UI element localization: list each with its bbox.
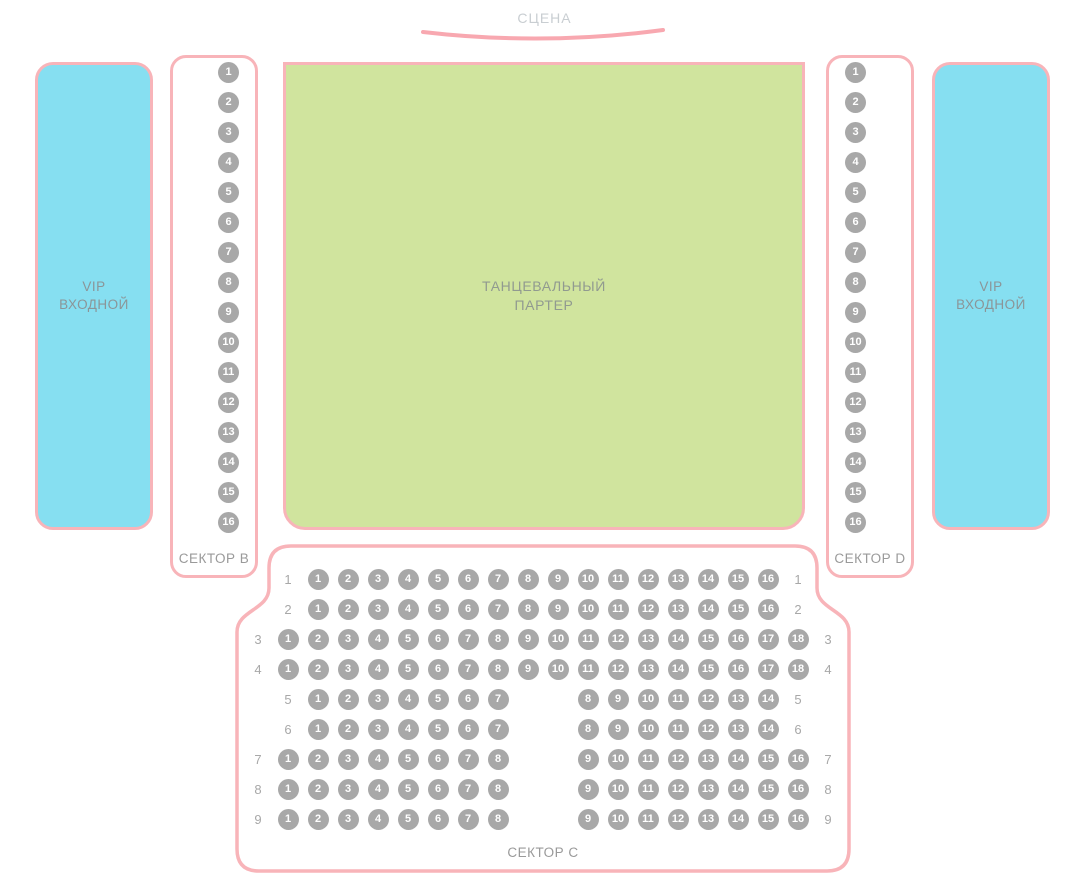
row-label-left: 7 [243, 749, 273, 770]
seat-6[interactable]: 6 [458, 689, 479, 710]
seat-8[interactable]: 8 [578, 719, 599, 740]
seat-11[interactable]: 11 [638, 749, 659, 770]
seat-slot: 5 [393, 809, 423, 830]
seat-9[interactable]: 9 [518, 659, 539, 680]
seat-slot: 5 [423, 599, 453, 620]
seat-slot: 13 [723, 689, 753, 710]
seat-14[interactable]: 14 [758, 719, 779, 740]
seat-11[interactable]: 11 [608, 569, 629, 590]
seat-slot: 9 [543, 599, 573, 620]
seat-10[interactable]: 10 [578, 569, 599, 590]
seat-2[interactable]: 2 [338, 569, 359, 590]
seat-10[interactable]: 10 [608, 779, 629, 800]
seat-slot: 12 [603, 629, 633, 650]
seat-slot: 6 [423, 809, 453, 830]
seat-12[interactable]: 12 [698, 689, 719, 710]
seat-14[interactable]: 14 [668, 629, 689, 650]
seat-10[interactable]: 10 [218, 332, 239, 353]
seat-11[interactable]: 11 [218, 362, 239, 383]
vip-left-label: VIP ВХОДНОЙ [59, 278, 129, 314]
seat-7[interactable]: 7 [488, 569, 509, 590]
seat-slot: 5 [393, 629, 423, 650]
sector-b-box: 12345678910111213141516 СЕКТОР B [170, 55, 258, 578]
seat-3[interactable]: 3 [338, 749, 359, 770]
seat-4[interactable]: 4 [398, 689, 419, 710]
seat-1[interactable]: 1 [308, 569, 329, 590]
seat-9[interactable]: 9 [518, 629, 539, 650]
seat-slot: 9 [513, 629, 543, 650]
seat-10[interactable]: 10 [638, 689, 659, 710]
seat-slot: 5 [393, 659, 423, 680]
seat-7[interactable]: 7 [458, 629, 479, 650]
seat-3[interactable]: 3 [368, 689, 389, 710]
seating-map: СЦЕНА VIP ВХОДНОЙ 1234567891011121314151… [0, 0, 1089, 885]
seat-2[interactable]: 2 [308, 629, 329, 650]
seat-1[interactable]: 1 [278, 629, 299, 650]
row-label-right: 8 [813, 779, 843, 800]
seat-13[interactable]: 13 [668, 569, 689, 590]
seat-12[interactable]: 12 [638, 599, 659, 620]
seat-15[interactable]: 15 [758, 779, 779, 800]
seat-slot: 2 [333, 599, 363, 620]
seat-13[interactable]: 13 [638, 659, 659, 680]
seat-1[interactable]: 1 [845, 62, 866, 83]
seat-9[interactable]: 9 [845, 302, 866, 323]
seat-slot: 1 [273, 659, 303, 680]
seat-7[interactable]: 7 [218, 242, 239, 263]
seat-13[interactable]: 13 [698, 749, 719, 770]
seat-12[interactable]: 12 [608, 659, 629, 680]
seat-slot: 1 [273, 749, 303, 770]
seat-10[interactable]: 10 [578, 599, 599, 620]
seat-slot: 2 [303, 809, 333, 830]
seat-slot: 15 [693, 629, 723, 650]
seat-slot: 10 [603, 779, 633, 800]
seat-18[interactable]: 18 [788, 629, 809, 650]
seat-11[interactable]: 11 [638, 809, 659, 830]
vip-zone-left[interactable]: VIP ВХОДНОЙ [35, 62, 153, 530]
seat-13[interactable]: 13 [638, 629, 659, 650]
seat-5[interactable]: 5 [398, 629, 419, 650]
seat-slot: 12 [633, 599, 663, 620]
seat-slot: 13 [693, 809, 723, 830]
seat-5[interactable]: 5 [218, 182, 239, 203]
seat-5[interactable]: 5 [398, 749, 419, 770]
seat-slot: 7 [483, 599, 513, 620]
seat-16[interactable]: 16 [788, 809, 809, 830]
seat-14[interactable]: 14 [728, 749, 749, 770]
seat-2[interactable]: 2 [338, 599, 359, 620]
seat-1[interactable]: 1 [308, 599, 329, 620]
seat-15[interactable]: 15 [698, 659, 719, 680]
seat-slot: 10 [543, 629, 573, 650]
seat-12[interactable]: 12 [668, 779, 689, 800]
seat-8[interactable]: 8 [488, 809, 509, 830]
seat-slot: 4 [363, 749, 393, 770]
seat-slot: 13 [663, 599, 693, 620]
seat-15[interactable]: 15 [218, 482, 239, 503]
seat-7[interactable]: 7 [488, 689, 509, 710]
seat-8[interactable]: 8 [845, 272, 866, 293]
seat-1[interactable]: 1 [308, 719, 329, 740]
seat-13[interactable]: 13 [698, 779, 719, 800]
seat-5[interactable]: 5 [428, 719, 449, 740]
seat-6[interactable]: 6 [458, 599, 479, 620]
seat-11[interactable]: 11 [608, 599, 629, 620]
seat-3[interactable]: 3 [845, 122, 866, 143]
seat-slot: 6 [453, 599, 483, 620]
seat-slot: 3 [333, 749, 363, 770]
seat-6[interactable]: 6 [458, 569, 479, 590]
row-label-right: 2 [783, 599, 813, 620]
seat-15[interactable]: 15 [728, 599, 749, 620]
seat-14[interactable]: 14 [728, 779, 749, 800]
seat-14[interactable]: 14 [845, 452, 866, 473]
seat-slot: 8 [483, 659, 513, 680]
seat-5[interactable]: 5 [428, 569, 449, 590]
seat-slot: 2 [303, 749, 333, 770]
seat-slot: 2 [333, 569, 363, 590]
stage-arc [420, 24, 666, 46]
seat-1[interactable]: 1 [278, 779, 299, 800]
seat-16[interactable]: 16 [758, 599, 779, 620]
seat-6[interactable]: 6 [218, 212, 239, 233]
seat-slot: 14 [693, 569, 723, 590]
seat-16[interactable]: 16 [788, 779, 809, 800]
seat-6[interactable]: 6 [428, 629, 449, 650]
seat-3[interactable]: 3 [338, 779, 359, 800]
seat-9[interactable]: 9 [608, 719, 629, 740]
seat-1[interactable]: 1 [278, 659, 299, 680]
seat-3[interactable]: 3 [368, 719, 389, 740]
seat-5[interactable]: 5 [398, 779, 419, 800]
empty-slot [543, 809, 573, 830]
seat-slot: 3 [363, 719, 393, 740]
seat-10[interactable]: 10 [548, 659, 569, 680]
seat-4[interactable]: 4 [218, 152, 239, 173]
seat-13[interactable]: 13 [728, 689, 749, 710]
seat-3[interactable]: 3 [338, 659, 359, 680]
seat-14[interactable]: 14 [698, 599, 719, 620]
seat-7[interactable]: 7 [488, 719, 509, 740]
seat-16[interactable]: 16 [728, 629, 749, 650]
seat-slot: 12 [603, 659, 633, 680]
seat-5[interactable]: 5 [845, 182, 866, 203]
seat-6[interactable]: 6 [428, 749, 449, 770]
seat-slot: 7 [453, 749, 483, 770]
row-label-right: 5 [783, 689, 813, 710]
seat-13[interactable]: 13 [728, 719, 749, 740]
seat-8[interactable]: 8 [518, 569, 539, 590]
seat-slot: 18 [783, 629, 813, 650]
seat-4[interactable]: 4 [368, 629, 389, 650]
seat-13[interactable]: 13 [668, 599, 689, 620]
seat-8[interactable]: 8 [218, 272, 239, 293]
seat-10[interactable]: 10 [638, 719, 659, 740]
seat-11[interactable]: 11 [668, 719, 689, 740]
seat-8[interactable]: 8 [488, 629, 509, 650]
seat-slot: 6 [423, 779, 453, 800]
seat-11[interactable]: 11 [845, 362, 866, 383]
seat-2[interactable]: 2 [218, 92, 239, 113]
dance-floor-label: ТАНЦЕВАЛЬНЫЙ ПАРТЕР [482, 277, 606, 315]
seat-slot: 14 [753, 719, 783, 740]
seat-slot: 15 [723, 599, 753, 620]
seat-slot: 10 [543, 659, 573, 680]
seat-16[interactable]: 16 [728, 659, 749, 680]
seat-8[interactable]: 8 [518, 599, 539, 620]
seat-2[interactable]: 2 [338, 719, 359, 740]
seat-9[interactable]: 9 [578, 749, 599, 770]
seat-7[interactable]: 7 [458, 749, 479, 770]
sector-d-box: 12345678910111213141516 СЕКТОР D [826, 55, 914, 578]
seat-14[interactable]: 14 [728, 809, 749, 830]
seat-slot: 13 [633, 659, 663, 680]
seat-slot: 2 [333, 689, 363, 710]
empty-slot [543, 779, 573, 800]
empty-slot [513, 779, 543, 800]
seat-2[interactable]: 2 [308, 809, 329, 830]
seat-slot: 4 [393, 599, 423, 620]
row-label-left: 5 [273, 689, 303, 710]
row-label-right: 9 [813, 809, 843, 830]
seat-slot: 5 [423, 689, 453, 710]
seat-10[interactable]: 10 [845, 332, 866, 353]
seat-6[interactable]: 6 [845, 212, 866, 233]
seat-7[interactable]: 7 [458, 779, 479, 800]
seat-slot: 14 [723, 809, 753, 830]
seat-4[interactable]: 4 [368, 779, 389, 800]
seat-5[interactable]: 5 [398, 809, 419, 830]
seat-5[interactable]: 5 [428, 689, 449, 710]
seat-slot: 10 [633, 689, 663, 710]
seat-13[interactable]: 13 [698, 809, 719, 830]
seat-12[interactable]: 12 [668, 809, 689, 830]
empty-slot [543, 689, 573, 710]
row-label-right: 3 [813, 629, 843, 650]
seat-2[interactable]: 2 [308, 749, 329, 770]
seat-9[interactable]: 9 [578, 809, 599, 830]
seat-3[interactable]: 3 [368, 569, 389, 590]
sector-c-row-3: 31234567891011121314151617183 [243, 629, 843, 650]
seat-1[interactable]: 1 [218, 62, 239, 83]
seat-15[interactable]: 15 [698, 629, 719, 650]
seat-17[interactable]: 17 [758, 659, 779, 680]
seat-11[interactable]: 11 [578, 629, 599, 650]
seat-3[interactable]: 3 [368, 599, 389, 620]
seat-slot: 10 [633, 719, 663, 740]
seat-14[interactable]: 14 [668, 659, 689, 680]
sector-c-row-9: 9123456789101112131415169 [243, 809, 843, 830]
seat-slot: 16 [753, 569, 783, 590]
row-label-right: 6 [783, 719, 813, 740]
seat-slot: 11 [633, 809, 663, 830]
seat-slot: 11 [663, 689, 693, 710]
seat-15[interactable]: 15 [758, 809, 779, 830]
sector-c-row-5: 512345678910111213145 [243, 689, 843, 710]
seat-12[interactable]: 12 [698, 719, 719, 740]
seat-slot: 1 [273, 779, 303, 800]
seat-6[interactable]: 6 [428, 779, 449, 800]
row-label-left: 3 [243, 629, 273, 650]
seat-14[interactable]: 14 [218, 452, 239, 473]
seat-15[interactable]: 15 [845, 482, 866, 503]
seat-slot: 3 [333, 809, 363, 830]
seat-slot: 10 [603, 809, 633, 830]
seat-12[interactable]: 12 [608, 629, 629, 650]
seat-slot: 16 [783, 809, 813, 830]
seat-slot: 11 [573, 659, 603, 680]
seat-5[interactable]: 5 [428, 599, 449, 620]
row-label-left: 2 [273, 599, 303, 620]
seat-12[interactable]: 12 [218, 392, 239, 413]
seat-slot: 2 [303, 779, 333, 800]
seat-13[interactable]: 13 [218, 422, 239, 443]
seat-6[interactable]: 6 [428, 659, 449, 680]
seat-slot: 9 [603, 689, 633, 710]
seat-11[interactable]: 11 [578, 659, 599, 680]
seat-12[interactable]: 12 [845, 392, 866, 413]
seat-3[interactable]: 3 [338, 629, 359, 650]
seat-8[interactable]: 8 [578, 689, 599, 710]
seat-slot: 16 [723, 629, 753, 650]
seat-slot: 14 [693, 599, 723, 620]
seat-slot: 6 [453, 689, 483, 710]
seat-4[interactable]: 4 [398, 569, 419, 590]
seat-16[interactable]: 16 [845, 512, 866, 533]
seat-9[interactable]: 9 [548, 599, 569, 620]
seat-8[interactable]: 8 [488, 749, 509, 770]
seat-9[interactable]: 9 [218, 302, 239, 323]
sector-c-label: СЕКТОР C [237, 845, 849, 860]
seat-slot: 15 [693, 659, 723, 680]
seat-4[interactable]: 4 [398, 599, 419, 620]
seat-2[interactable]: 2 [338, 689, 359, 710]
seat-slot: 14 [723, 749, 753, 770]
seat-4[interactable]: 4 [845, 152, 866, 173]
seat-slot: 11 [573, 629, 603, 650]
seat-5[interactable]: 5 [398, 659, 419, 680]
seat-slot: 4 [363, 779, 393, 800]
seat-slot: 13 [693, 779, 723, 800]
seat-slot: 1 [303, 599, 333, 620]
seat-slot: 11 [663, 719, 693, 740]
seat-10[interactable]: 10 [548, 629, 569, 650]
vip-zone-right[interactable]: VIP ВХОДНОЙ [932, 62, 1050, 530]
seat-slot: 7 [453, 809, 483, 830]
seat-14[interactable]: 14 [698, 569, 719, 590]
seat-10[interactable]: 10 [608, 809, 629, 830]
seat-slot: 15 [753, 749, 783, 770]
seat-3[interactable]: 3 [338, 809, 359, 830]
seat-slot: 17 [753, 629, 783, 650]
seat-slot: 14 [663, 629, 693, 650]
row-label-right: 4 [813, 659, 843, 680]
seat-13[interactable]: 13 [845, 422, 866, 443]
seat-14[interactable]: 14 [758, 689, 779, 710]
seat-4[interactable]: 4 [398, 719, 419, 740]
seat-slot: 14 [753, 689, 783, 710]
seat-slot: 9 [573, 749, 603, 770]
seat-slot: 8 [483, 629, 513, 650]
seat-2[interactable]: 2 [845, 92, 866, 113]
seat-4[interactable]: 4 [368, 659, 389, 680]
seat-slot: 3 [333, 659, 363, 680]
seat-9[interactable]: 9 [548, 569, 569, 590]
seat-slot: 2 [333, 719, 363, 740]
seat-16[interactable]: 16 [788, 749, 809, 770]
seat-9[interactable]: 9 [578, 779, 599, 800]
seat-16[interactable]: 16 [758, 569, 779, 590]
seat-slot: 1 [303, 689, 333, 710]
seat-slot: 10 [573, 569, 603, 590]
seat-18[interactable]: 18 [788, 659, 809, 680]
seat-4[interactable]: 4 [368, 749, 389, 770]
empty-slot [543, 749, 573, 770]
seat-7[interactable]: 7 [845, 242, 866, 263]
seat-8[interactable]: 8 [488, 659, 509, 680]
seat-7[interactable]: 7 [458, 809, 479, 830]
seat-slot: 7 [453, 629, 483, 650]
seat-slot: 15 [753, 779, 783, 800]
seat-17[interactable]: 17 [758, 629, 779, 650]
seat-12[interactable]: 12 [668, 749, 689, 770]
seat-slot: 9 [603, 719, 633, 740]
seat-slot: 8 [513, 569, 543, 590]
dance-floor-zone[interactable]: ТАНЦЕВАЛЬНЫЙ ПАРТЕР [283, 62, 805, 530]
seat-slot: 3 [363, 689, 393, 710]
seat-4[interactable]: 4 [368, 809, 389, 830]
sector-c-row-7: 7123456789101112131415167 [243, 749, 843, 770]
seat-15[interactable]: 15 [728, 569, 749, 590]
seat-slot: 10 [573, 599, 603, 620]
seat-slot: 12 [663, 779, 693, 800]
seat-15[interactable]: 15 [758, 749, 779, 770]
seat-11[interactable]: 11 [668, 689, 689, 710]
seat-12[interactable]: 12 [638, 569, 659, 590]
seat-8[interactable]: 8 [488, 779, 509, 800]
seat-2[interactable]: 2 [308, 659, 329, 680]
seat-7[interactable]: 7 [488, 599, 509, 620]
seat-1[interactable]: 1 [278, 749, 299, 770]
seat-slot: 1 [273, 809, 303, 830]
seat-6[interactable]: 6 [458, 719, 479, 740]
seat-1[interactable]: 1 [308, 689, 329, 710]
sector-c-rows: 1123456789101112131415161212345678910111… [243, 569, 843, 839]
seat-slot: 7 [483, 569, 513, 590]
seat-7[interactable]: 7 [458, 659, 479, 680]
seat-10[interactable]: 10 [608, 749, 629, 770]
seat-slot: 11 [603, 599, 633, 620]
seat-slot: 4 [363, 629, 393, 650]
seat-1[interactable]: 1 [278, 809, 299, 830]
seat-slot: 5 [393, 779, 423, 800]
seat-2[interactable]: 2 [308, 779, 329, 800]
seat-11[interactable]: 11 [638, 779, 659, 800]
seat-9[interactable]: 9 [608, 689, 629, 710]
seat-slot: 2 [303, 629, 333, 650]
seat-slot: 8 [483, 779, 513, 800]
seat-slot: 9 [543, 569, 573, 590]
seat-6[interactable]: 6 [428, 809, 449, 830]
seat-slot: 13 [663, 569, 693, 590]
seat-slot: 3 [333, 779, 363, 800]
seat-slot: 16 [783, 779, 813, 800]
seat-3[interactable]: 3 [218, 122, 239, 143]
seat-16[interactable]: 16 [218, 512, 239, 533]
seat-slot: 8 [483, 749, 513, 770]
empty-slot [513, 749, 543, 770]
